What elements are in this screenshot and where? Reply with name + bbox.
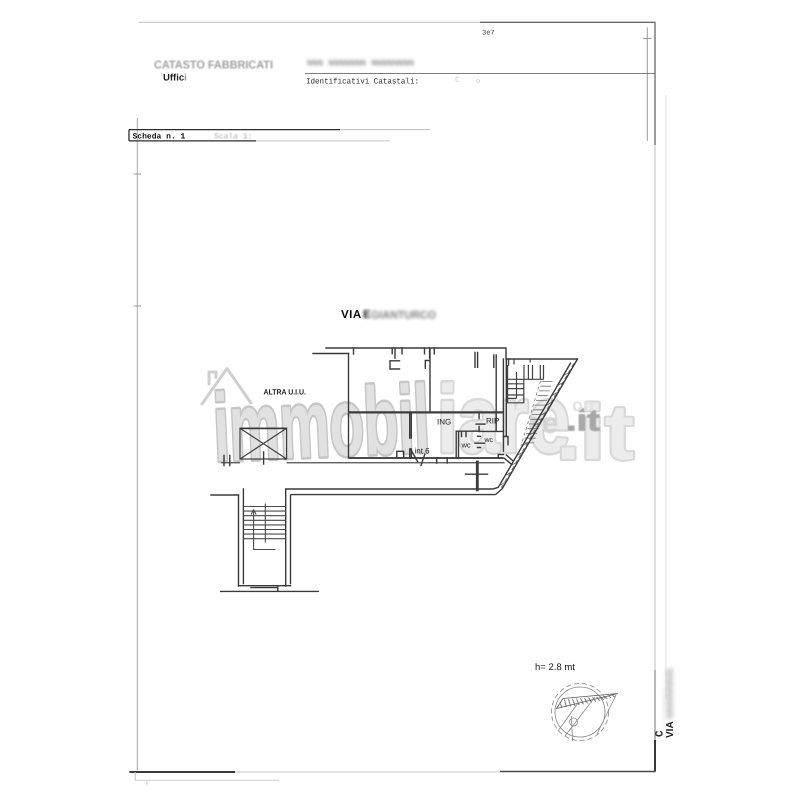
svg-text:Scheda n. 1: Scheda n. 1: [133, 133, 186, 142]
svg-text:on: on: [572, 395, 594, 415]
svg-text:C: C: [455, 76, 460, 85]
svg-text:E: E: [363, 309, 371, 321]
svg-text:Scala 1:: Scala 1:: [214, 133, 252, 142]
svg-text:o: o: [476, 78, 480, 86]
svg-text:RIP: RIP: [486, 417, 499, 426]
svg-text:VIA NNNNNNN: VIA NNNNNNN: [665, 668, 676, 738]
svg-text:h= 2.8 mt: h= 2.8 mt: [535, 662, 575, 673]
svg-text:immobil: immobil: [211, 366, 431, 482]
svg-text:Identificativi Catastali:: Identificativi Catastali:: [306, 78, 419, 87]
svg-text:int 6: int 6: [415, 447, 431, 456]
svg-text:NNN NNNNNNN NNNNNNNN: NNN NNNNNNN NNNNNNNN: [307, 59, 414, 69]
svg-text:wc: wc: [484, 437, 494, 444]
svg-text:GIANTURCO: GIANTURCO: [371, 310, 436, 322]
svg-text:Uffici: Uffici: [163, 73, 187, 84]
svg-text:ALTRA U.I.U.: ALTRA U.I.U.: [264, 387, 307, 396]
svg-text:wc: wc: [461, 441, 471, 450]
svg-text:ING: ING: [437, 418, 451, 427]
svg-text:VIA: VIA: [341, 309, 362, 321]
svg-text:3e7: 3e7: [482, 30, 495, 38]
svg-text:re: re: [530, 407, 558, 440]
svg-text:CATASTO FABBRICATI: CATASTO FABBRICATI: [154, 60, 273, 72]
